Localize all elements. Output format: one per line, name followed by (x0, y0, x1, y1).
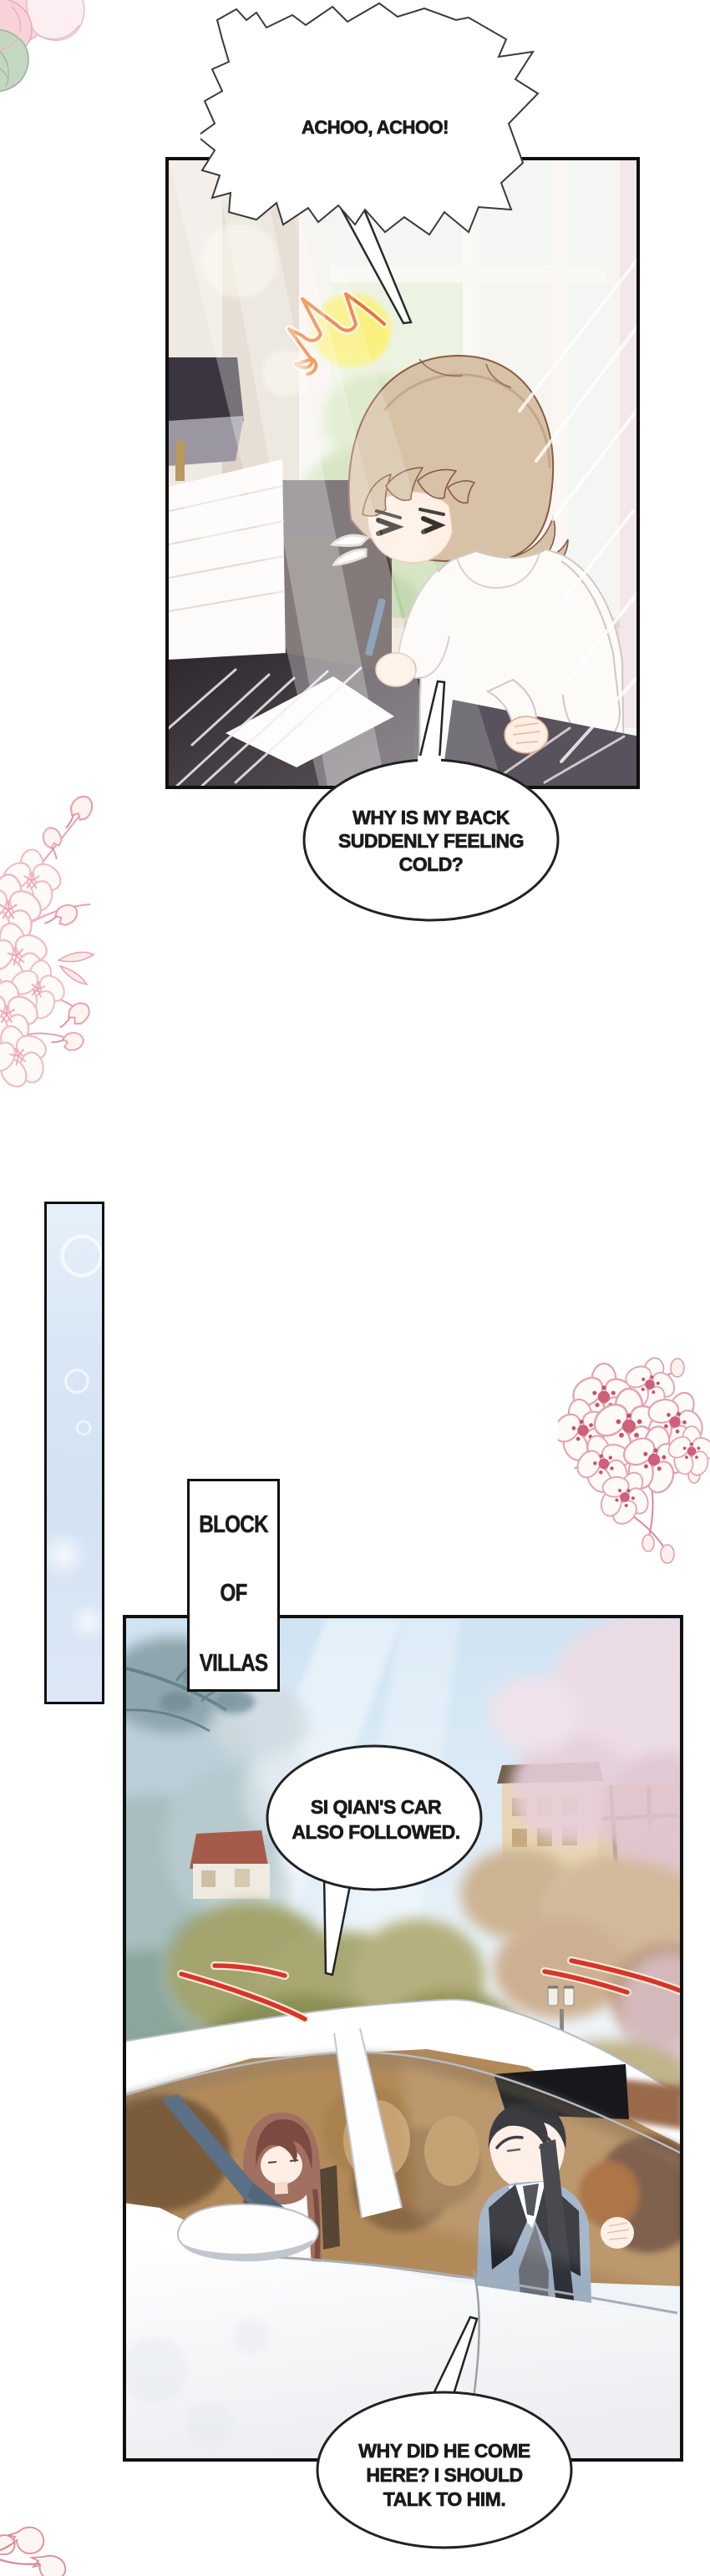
svg-text:TALK TO HIM.: TALK TO HIM. (383, 2488, 505, 2510)
svg-text:WHY IS MY BACK: WHY IS MY BACK (352, 807, 510, 828)
svg-text:ACHOO, ACHOO!: ACHOO, ACHOO! (302, 117, 449, 138)
svg-text:WHY DID HE COME: WHY DID HE COME (358, 2440, 530, 2462)
svg-text:HERE? I SHOULD: HERE? I SHOULD (366, 2464, 522, 2486)
svg-text:COLD?: COLD? (399, 853, 464, 875)
svg-text:SI QIAN'S CAR: SI QIAN'S CAR (311, 1796, 442, 1818)
svg-text:SUDDENLY FEELING: SUDDENLY FEELING (338, 830, 524, 852)
svg-text:ALSO FOLLOWED.: ALSO FOLLOWED. (292, 1821, 459, 1843)
